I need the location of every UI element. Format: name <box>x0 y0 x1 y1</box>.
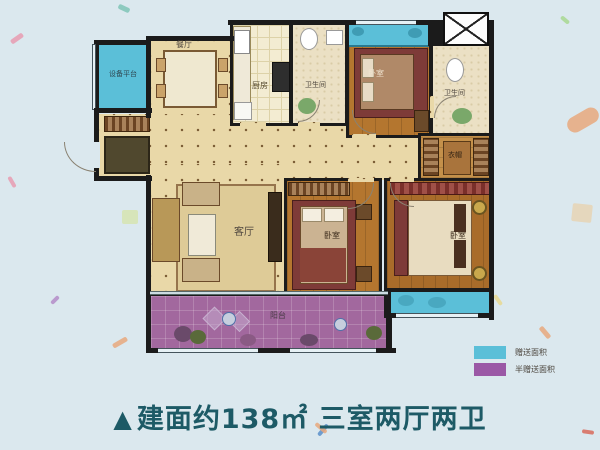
stove <box>272 62 290 92</box>
room-label-cloakroom: 衣帽 <box>448 152 462 160</box>
entry-rug <box>104 136 150 174</box>
room-label-kitchen: 厨房 <box>252 82 268 91</box>
door-gap <box>298 122 320 126</box>
room-label-bath-right: 卫生间 <box>444 90 465 98</box>
pillow <box>302 208 322 222</box>
dining-table <box>163 50 217 108</box>
toilet <box>446 58 464 82</box>
tv-console <box>268 192 282 262</box>
plant <box>398 295 414 306</box>
dining-chair <box>156 84 166 98</box>
coffee-table <box>188 214 216 256</box>
door-gap <box>352 134 376 138</box>
armchair <box>182 258 220 282</box>
window <box>92 44 96 110</box>
nightstand <box>472 266 487 281</box>
plant <box>240 334 256 346</box>
window <box>356 20 416 25</box>
sofa <box>152 198 180 262</box>
pillow <box>362 82 374 102</box>
legend-swatch-gift <box>474 346 506 359</box>
plant <box>190 330 206 344</box>
plant <box>408 28 422 38</box>
entry-door-arc <box>64 142 96 172</box>
wall <box>94 40 150 45</box>
shaft-box <box>443 12 489 46</box>
plant <box>300 334 318 346</box>
kitchen-sink <box>234 30 250 54</box>
pillow <box>454 204 466 232</box>
wardrobe <box>423 138 439 176</box>
legend-swatch-half-gift <box>474 363 506 376</box>
door-gap <box>348 178 374 182</box>
room-label-bath-top: 卫生间 <box>305 82 326 90</box>
window <box>396 313 478 318</box>
room-label-bedroom-master: 卧室 <box>450 232 466 241</box>
plant <box>174 326 192 342</box>
caption: ▲建面约138㎡ 三室两厅两卫 <box>0 397 600 436</box>
wall <box>94 108 99 142</box>
room-label-bedroom-top: 卧室 <box>368 70 384 79</box>
blanket <box>300 248 346 282</box>
room-label-balcony: 阳台 <box>270 312 286 321</box>
door-gap <box>240 122 266 126</box>
dining-chair <box>156 58 166 72</box>
legend-row-half-gift: 半赠送面积 <box>474 363 555 376</box>
nightstand <box>472 200 487 215</box>
room-label-bedroom-mid: 卧室 <box>324 232 340 241</box>
room-label-living: 客厅 <box>234 227 254 238</box>
floorplan-page: 设备平台 餐厅 厨房 卫生间 卧室 卫生间 衣帽 客厅 卧室 卧室 阳台 赠送面… <box>0 0 600 450</box>
triangle-marker-icon: ▲ <box>113 405 132 433</box>
kitchen-appliance <box>234 102 252 120</box>
legend-row-gift: 赠送面积 <box>474 346 547 359</box>
legend-label-gift: 赠送面积 <box>515 347 547 358</box>
window <box>290 348 376 353</box>
floorplan: 设备平台 餐厅 厨房 卫生间 卧室 卫生间 衣帽 客厅 卧室 卧室 阳台 <box>0 0 600 450</box>
toilet <box>300 28 318 50</box>
wall <box>386 291 391 351</box>
washbasin <box>326 30 343 45</box>
room-label-dining: 餐厅 <box>176 41 192 50</box>
floor-circle-deco <box>222 312 236 326</box>
master-rug <box>394 200 408 276</box>
door-gap <box>390 178 414 182</box>
wall <box>489 20 494 320</box>
wall <box>94 176 152 181</box>
nightstand <box>356 266 372 282</box>
dining-chair <box>218 58 228 72</box>
armchair <box>182 182 220 206</box>
room-label-equipment-platform: 设备平台 <box>100 71 146 79</box>
shoe-cabinet <box>104 116 150 132</box>
wall <box>146 175 151 353</box>
wall <box>94 108 152 113</box>
pillow <box>454 240 466 268</box>
pillow <box>324 208 344 222</box>
floor-circle-deco <box>334 318 347 331</box>
plant <box>366 326 382 340</box>
plant <box>428 297 446 308</box>
window <box>158 348 258 353</box>
dresser <box>414 110 429 132</box>
sliding-door-glass <box>150 291 388 295</box>
wardrobe <box>288 182 350 196</box>
wardrobe <box>473 138 489 176</box>
plant <box>352 27 364 36</box>
room-balcony <box>148 293 392 351</box>
legend-label-half-gift: 半赠送面积 <box>515 364 555 375</box>
wall <box>146 36 151 118</box>
caption-text: 建面约138㎡ 三室两厅两卫 <box>137 404 487 435</box>
dining-chair <box>218 84 228 98</box>
